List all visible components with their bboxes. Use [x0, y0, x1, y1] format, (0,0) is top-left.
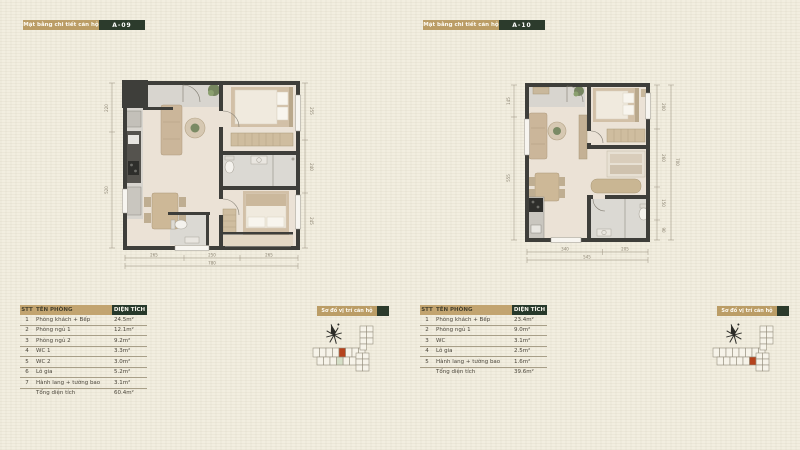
row-area: 3.0m² — [114, 359, 147, 365]
highlighted-unit — [750, 357, 757, 365]
svg-text:260: 260 — [661, 154, 666, 162]
col-area: DIỆN TÍCH — [512, 305, 547, 315]
svg-text:200: 200 — [661, 103, 666, 111]
row-stt: 3 — [20, 338, 34, 344]
table-row: 5WC 23.0m² — [20, 357, 147, 368]
table-row: 4WC 13.3m² — [20, 347, 147, 358]
row-name: Phòng ngủ 1 — [434, 327, 514, 333]
svg-text:240: 240 — [309, 163, 314, 171]
panel-header-label: Mặt bằng chi tiết căn hộ — [23, 20, 99, 30]
building-blocks — [713, 326, 773, 371]
plan-body-a10 — [525, 85, 651, 243]
table-header: STT TÊN PHÒNG DIỆN TÍCH — [20, 305, 147, 315]
table-row: 6Lô gia5.2m² — [20, 368, 147, 379]
col-stt: STT — [420, 307, 434, 313]
compass-icon — [723, 322, 744, 345]
floor-plan-a10: 145 555 200 260 150 90 700 340 205 545 — [505, 62, 700, 272]
total-label: Tổng diện tích — [434, 369, 514, 375]
row-stt: 3 — [420, 338, 434, 344]
site-map-header-a09: Sơ đồ vị trí căn hộ — [317, 306, 389, 316]
table-total-row: Tổng diện tích60.4m² — [20, 389, 147, 399]
bedroom-1 — [231, 87, 293, 146]
unit-code-badge: A-09 — [99, 20, 145, 30]
row-area: 3.1m² — [114, 380, 147, 386]
site-map-unit-swatch — [377, 306, 389, 316]
row-stt: 4 — [420, 348, 434, 354]
panel-a10-header: Mặt bằng chi tiết căn hộ A-10 — [423, 20, 545, 30]
table-row: 3WC3.1m² — [420, 336, 547, 347]
svg-text:340: 340 — [561, 247, 569, 252]
table-header-left: STT TÊN PHÒNG — [420, 305, 512, 315]
svg-text:245: 245 — [309, 217, 314, 225]
panel-a09-header: Mặt bằng chi tiết căn hộ A-09 — [23, 20, 145, 30]
site-map-a10 — [696, 320, 792, 380]
row-area: 2.5m² — [514, 348, 547, 354]
svg-text:545: 545 — [583, 255, 591, 260]
site-map-label: Sơ đồ vị trí căn hộ — [717, 306, 777, 316]
col-name: TÊN PHÒNG — [434, 307, 472, 313]
svg-text:520: 520 — [104, 186, 109, 194]
row-stt: 7 — [20, 380, 34, 386]
compass-icon — [323, 322, 344, 345]
site-map-label: Sơ đồ vị trí căn hộ — [317, 306, 377, 316]
row-name: Hành lang + tường bao — [434, 359, 514, 365]
svg-text:220: 220 — [104, 104, 109, 112]
row-name: Phòng ngủ 2 — [34, 338, 114, 344]
table-rows: 1Phòng khách + Bếp23.4m²2Phòng ngủ 19.0m… — [420, 315, 547, 377]
svg-text:255: 255 — [309, 107, 314, 115]
row-name: WC 1 — [34, 348, 114, 354]
row-stt: 1 — [420, 317, 434, 323]
area-table-a09: STT TÊN PHÒNG DIỆN TÍCH 1Phòng khách + B… — [20, 305, 147, 398]
site-map-a09 — [296, 320, 392, 380]
table-row: 7Hành lang + tường bao3.1m² — [20, 378, 147, 389]
highlighted-unit — [339, 348, 346, 357]
table-row: 3Phòng ngủ 29.2m² — [20, 336, 147, 347]
svg-text:205: 205 — [621, 247, 629, 252]
site-map-unit-swatch — [777, 306, 789, 316]
svg-text:250: 250 — [208, 253, 216, 258]
row-area: 23.4m² — [514, 317, 547, 323]
row-name: Phòng ngủ 1 — [34, 327, 114, 333]
row-stt: 6 — [20, 369, 34, 375]
svg-text:700: 700 — [675, 158, 680, 166]
svg-text:780: 780 — [208, 261, 216, 266]
row-name: Lô gia — [434, 348, 514, 354]
table-row: 1Phòng khách + Bếp23.4m² — [420, 315, 547, 326]
table-rows: 1Phòng khách + Bếp24.5m²2Phòng ngủ 112.1… — [20, 315, 147, 398]
table-header: STT TÊN PHÒNG DIỆN TÍCH — [420, 305, 547, 315]
floor-plan-a09: 220 520 255 240 245 265 250 265 780 — [102, 60, 314, 274]
total-area: 39.6m² — [514, 369, 547, 375]
row-stt: 4 — [20, 348, 34, 354]
unit-code-badge: A-10 — [499, 20, 545, 30]
col-stt: STT — [20, 307, 34, 313]
svg-text:90: 90 — [661, 227, 666, 233]
table-header-left: STT TÊN PHÒNG — [20, 305, 112, 315]
row-name: WC — [434, 338, 514, 344]
row-area: 9.2m² — [114, 338, 147, 344]
total-label: Tổng diện tích — [34, 390, 114, 396]
table-row: 2Phòng ngủ 112.1m² — [20, 326, 147, 337]
site-map-header-a10: Sơ đồ vị trí căn hộ — [717, 306, 789, 316]
kitchen — [528, 197, 544, 239]
table-total-row: Tổng diện tích39.6m² — [420, 368, 547, 378]
table-row: 4Lô gia2.5m² — [420, 347, 547, 358]
table-row: 5Hành lang + tường bao1.6m² — [420, 357, 547, 368]
row-name: Hành lang + tường bao — [34, 380, 114, 386]
area-table-a10: STT TÊN PHÒNG DIỆN TÍCH 1Phòng khách + B… — [420, 305, 547, 377]
row-area: 5.2m² — [114, 369, 147, 375]
row-stt: 5 — [420, 359, 434, 365]
col-area: DIỆN TÍCH — [112, 305, 147, 315]
brochure-page: Mặt bằng chi tiết căn hộ A-09 220 520 25… — [0, 0, 800, 450]
building-blocks — [313, 326, 373, 371]
row-name: Phòng khách + Bếp — [434, 317, 514, 323]
row-name: WC 2 — [34, 359, 114, 365]
svg-text:555: 555 — [506, 174, 511, 182]
table-row: 1Phòng khách + Bếp24.5m² — [20, 315, 147, 326]
row-area: 3.3m² — [114, 348, 147, 354]
total-area: 60.4m² — [114, 390, 147, 396]
table-row: 2Phòng ngủ 19.0m² — [420, 326, 547, 337]
row-name: Lô gia — [34, 369, 114, 375]
col-name: TÊN PHÒNG — [34, 307, 72, 313]
row-stt: 1 — [20, 317, 34, 323]
row-stt: 2 — [20, 327, 34, 333]
row-stt: 2 — [420, 327, 434, 333]
svg-text:150: 150 — [661, 199, 666, 207]
row-area: 9.0m² — [514, 327, 547, 333]
row-stt: 5 — [20, 359, 34, 365]
row-name: Phòng khách + Bếp — [34, 317, 114, 323]
row-area: 24.5m² — [114, 317, 147, 323]
svg-text:265: 265 — [265, 253, 273, 258]
row-area: 1.6m² — [514, 359, 547, 365]
plan-body-a09 — [122, 80, 301, 251]
svg-text:145: 145 — [506, 97, 511, 105]
row-area: 3.1m² — [514, 338, 547, 344]
svg-text:265: 265 — [150, 253, 158, 258]
row-area: 12.1m² — [114, 327, 147, 333]
panel-header-label: Mặt bằng chi tiết căn hộ — [423, 20, 499, 30]
